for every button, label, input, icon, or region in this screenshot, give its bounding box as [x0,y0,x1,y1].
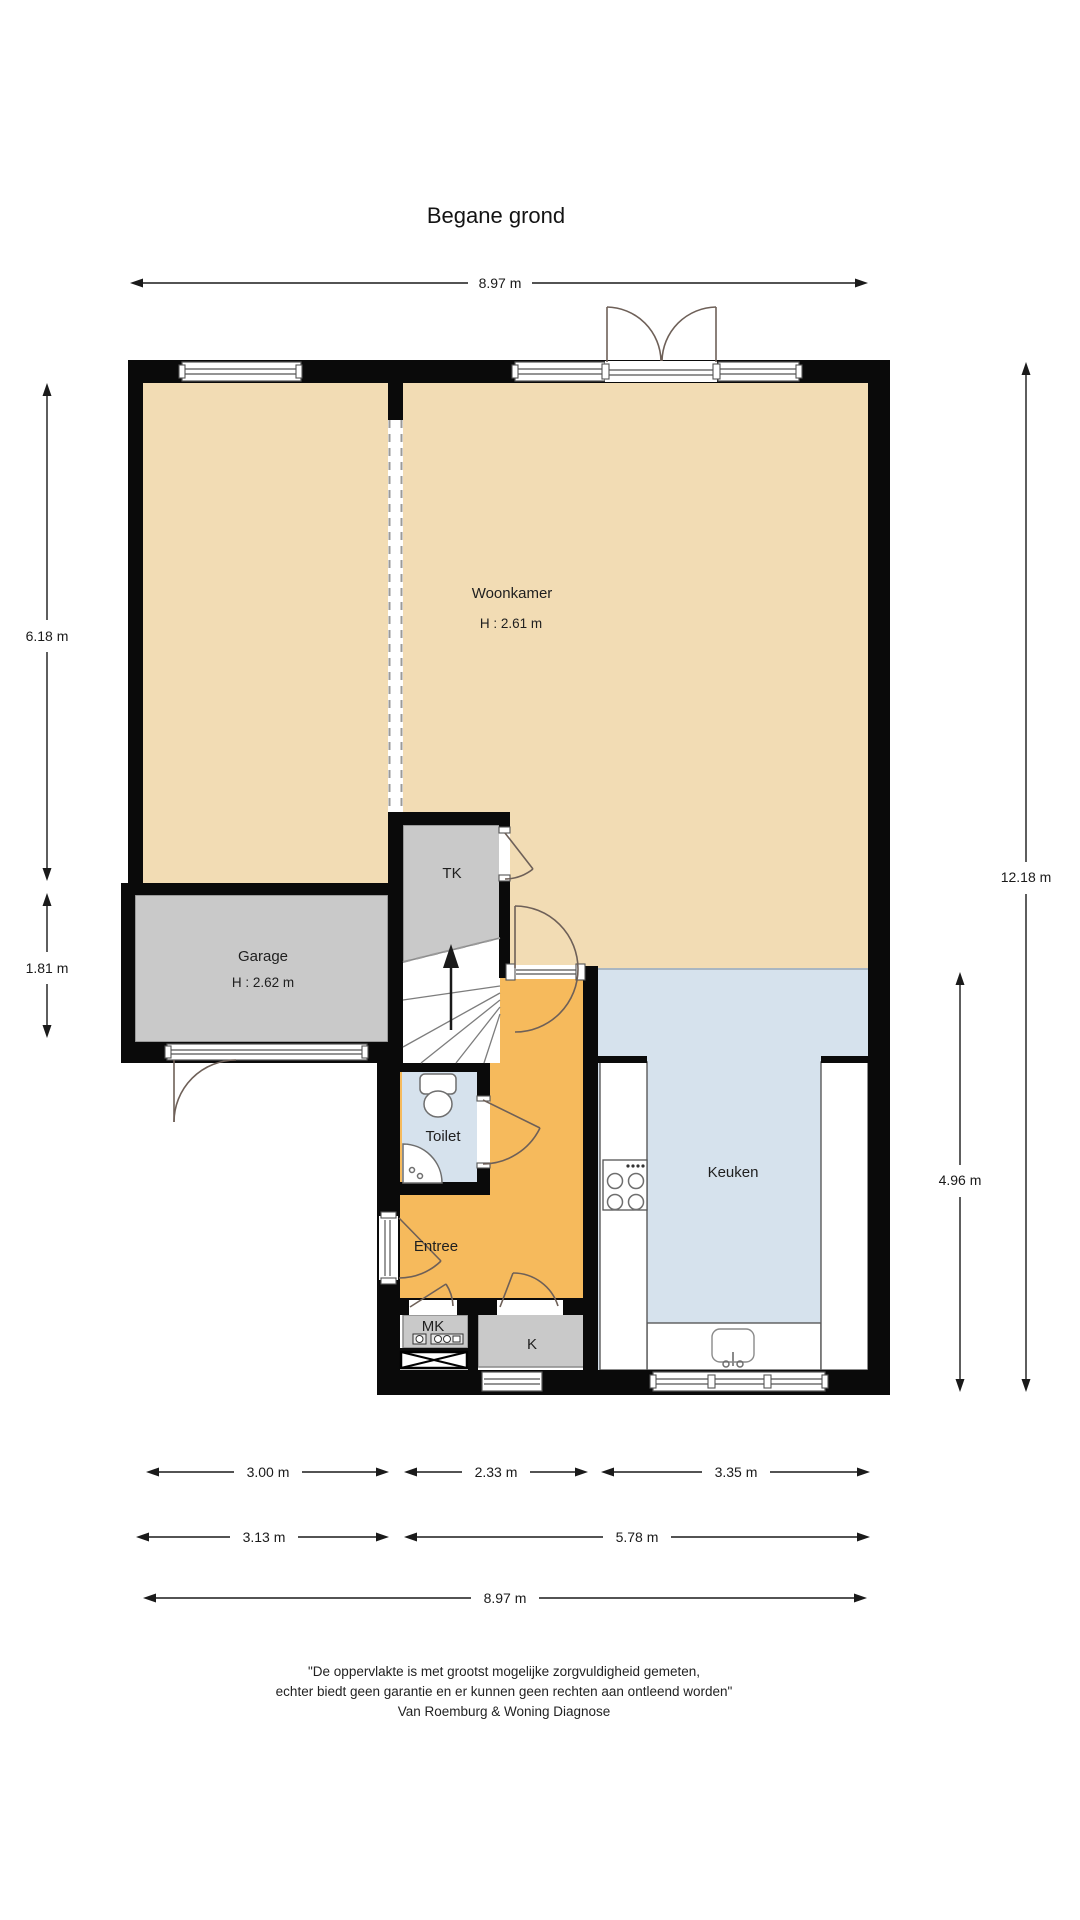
garage-door [165,1044,368,1122]
svg-text:3.00 m: 3.00 m [247,1464,290,1480]
dimension-bottom-total: 8.97 m [143,1590,867,1606]
window-top-mid [512,362,605,381]
meter-cabinet-icons [413,1334,463,1344]
room-garage [135,895,388,1042]
svg-text:3.35 m: 3.35 m [715,1464,758,1480]
woonkamer-height: H : 2.61 m [480,616,542,631]
garage-label: Garage [238,948,288,965]
svg-text:8.97 m: 8.97 m [484,1590,527,1606]
dimension-bottom-row1: 3.00 m 2.33 m 3.35 m [146,1464,870,1480]
mk-label: MK [422,1318,445,1335]
room-entree-right [500,978,583,1308]
cooktop-icon [603,1160,647,1210]
svg-text:5.78 m: 5.78 m [616,1529,659,1545]
counter-right-cap [821,1056,868,1063]
entree-label: Entree [414,1238,458,1255]
toilet-label: Toilet [425,1128,461,1145]
garage-height: H : 2.62 m [232,975,294,990]
svg-text:4.96 m: 4.96 m [939,1172,982,1188]
woonkamer-label: Woonkamer [472,585,553,602]
counter-left [600,1062,647,1370]
k-label: K [527,1336,537,1353]
svg-text:12.18 m: 12.18 m [1001,869,1052,885]
dimension-right-total: 12.18 m [1001,362,1052,1392]
crawl-hatch-icon [401,1352,467,1368]
double-garden-door [602,307,720,382]
window-top-left [179,362,302,381]
window-top-right [718,362,802,381]
window-bottom-left [482,1372,542,1391]
dimension-bottom-row2: 3.13 m 5.78 m [136,1529,870,1545]
counter-right [821,1062,868,1370]
page-title: Begane grond [427,203,565,228]
counter-left-cap [598,1056,647,1063]
kitchen-sink-icon [712,1329,754,1367]
svg-text:1.81 m: 1.81 m [26,960,69,976]
dimension-left-lower: 1.81 m [26,893,69,1038]
svg-text:3.13 m: 3.13 m [243,1529,286,1545]
svg-text:6.18 m: 6.18 m [26,628,69,644]
floor-plan-drawing: Begane grond [0,0,1080,1920]
dimension-left-upper: 6.18 m [26,383,69,881]
tk-label: TK [442,865,461,882]
disclaimer: "De oppervlakte is met grootst mogelijke… [276,1664,733,1719]
disclaimer-line1: "De oppervlakte is met grootst mogelijke… [308,1664,700,1679]
dimension-top: 8.97 m [130,275,868,291]
floor-plan-page: Begane grond [0,0,1080,1920]
disclaimer-line3: Van Roemburg & Woning Diagnose [398,1704,611,1719]
disclaimer-line2: echter biedt geen garantie en er kunnen … [276,1684,733,1699]
svg-text:2.33 m: 2.33 m [475,1464,518,1480]
svg-text:8.97 m: 8.97 m [479,275,522,291]
dimension-right-kitchen: 4.96 m [939,972,982,1392]
window-kitchen [650,1372,828,1391]
keuken-label: Keuken [708,1164,759,1181]
